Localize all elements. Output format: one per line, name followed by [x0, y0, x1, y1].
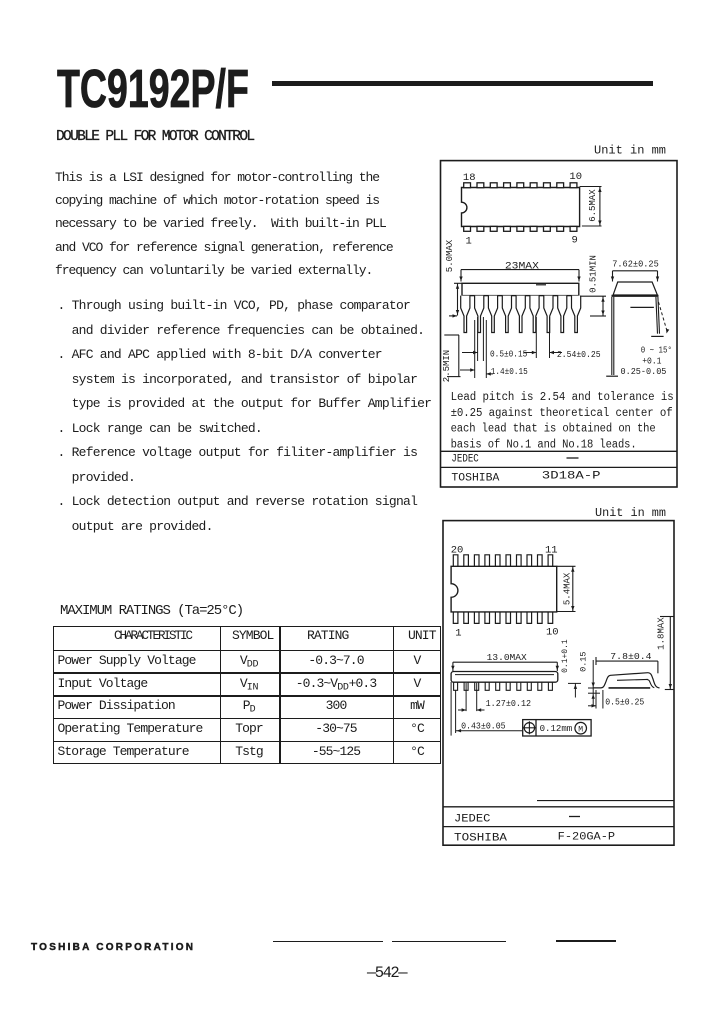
svg-text:10: 10 [546, 627, 559, 639]
svg-text:18: 18 [463, 172, 476, 184]
svg-text:5.0MAX: 5.0MAX [445, 239, 455, 272]
svg-text:basis of No.1 and No.18 leads.: basis of No.1 and No.18 leads. [451, 439, 637, 452]
svg-text:+0.1: +0.1 [642, 355, 662, 366]
svg-text:0.12mm: 0.12mm [540, 723, 573, 734]
svg-text:0.5±0.25: 0.5±0.25 [605, 697, 644, 708]
svg-text:JEDEC: JEDEC [454, 813, 491, 825]
svg-text:0.15: 0.15 [579, 651, 589, 671]
svg-text:0.43±0.05: 0.43±0.05 [461, 720, 506, 731]
svg-text:TOSHIBA: TOSHIBA [451, 472, 499, 484]
svg-text:JEDEC: JEDEC [451, 454, 479, 466]
svg-text:F-20GA-P: F-20GA-P [558, 832, 616, 844]
svg-text:TOSHIBA: TOSHIBA [454, 833, 507, 845]
svg-text:Unit in mm: Unit in mm [595, 507, 666, 520]
svg-text:1.4±0.15: 1.4±0.15 [491, 366, 528, 377]
svg-text:5.4MAX: 5.4MAX [562, 572, 572, 605]
svg-text:3D18A-P: 3D18A-P [542, 471, 601, 483]
svg-text:20: 20 [451, 545, 464, 557]
svg-text:Unit in mm: Unit in mm [594, 145, 666, 158]
svg-text:13.0MAX: 13.0MAX [487, 652, 527, 663]
svg-text:7.8±0.4: 7.8±0.4 [610, 651, 651, 662]
svg-text:23MAX: 23MAX [505, 261, 539, 272]
svg-text:10: 10 [569, 171, 582, 183]
svg-text:M: M [578, 725, 583, 734]
svg-text:7.62±0.25: 7.62±0.25 [612, 260, 659, 270]
svg-text:11: 11 [545, 545, 558, 557]
svg-text:9: 9 [572, 235, 578, 247]
svg-text:6.5MAX: 6.5MAX [588, 189, 598, 222]
svg-text:1.8MAX: 1.8MAX [657, 617, 667, 650]
svg-text:0.1+0.1: 0.1+0.1 [561, 639, 570, 673]
svg-text:1: 1 [466, 236, 472, 248]
svg-text:0 ~ 15°: 0 ~ 15° [641, 344, 672, 355]
svg-text:0.51MIN: 0.51MIN [589, 255, 599, 293]
svg-text:each lead that is obtained on: each lead that is obtained on the [451, 423, 656, 436]
svg-text:0.25-0.05: 0.25-0.05 [621, 366, 667, 377]
svg-text:2.54±0.25: 2.54±0.25 [557, 349, 601, 360]
svg-text:1.27±0.12: 1.27±0.12 [486, 698, 532, 709]
svg-text:0.5±0.15: 0.5±0.15 [490, 348, 528, 359]
svg-text:1: 1 [455, 627, 461, 639]
svg-text:2.5MIN: 2.5MIN [442, 350, 452, 382]
svg-text:Lead pitch is 2.54 and toleran: Lead pitch is 2.54 and tolerance is [451, 391, 674, 404]
svg-text:±0.25 against theoretical cent: ±0.25 against theoretical center of [451, 407, 673, 420]
